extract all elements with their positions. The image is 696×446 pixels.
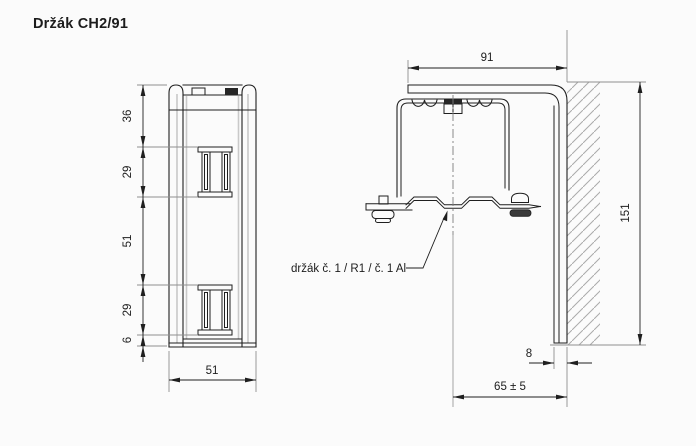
- drawing-canvas: Držák CH2/91: [0, 0, 696, 446]
- front-rails: [169, 85, 256, 347]
- dim-91: 91: [481, 52, 494, 64]
- side-view: 91 151 8 65 ± 5: [291, 30, 646, 407]
- holder-leader: držák č. 1 / R1 / č. 1 Al: [291, 211, 448, 276]
- front-slot-lower: [198, 285, 232, 335]
- dim-151: 151: [620, 203, 632, 222]
- leader-label: držák č. 1 / R1 / č. 1 Al: [291, 263, 406, 275]
- page-title: Držák CH2/91: [33, 16, 128, 32]
- dim-29-lower: 29: [122, 304, 134, 317]
- top-tab-left: [192, 88, 205, 95]
- left-bolt-shank: [379, 196, 388, 204]
- bracket-profile: [408, 85, 567, 343]
- front-view-shading: [177, 94, 248, 343]
- side-width-dimension: 91: [408, 30, 567, 83]
- top-tab-right: [225, 88, 238, 95]
- front-view: 36 29 51 29 6 51: [122, 85, 256, 392]
- side-height-dimension: 151: [620, 82, 642, 345]
- front-body: [169, 85, 256, 347]
- dim-51-width: 51: [206, 365, 219, 377]
- left-bolt-washer: [376, 219, 391, 223]
- dim-29-upper: 29: [122, 166, 134, 179]
- front-slot-upper: [198, 147, 232, 197]
- dim-6: 6: [122, 337, 134, 343]
- left-bolt-nut: [372, 211, 394, 219]
- dim-8: 8: [526, 348, 532, 360]
- dim-51-mid: 51: [122, 235, 134, 248]
- right-screw-head: [512, 193, 529, 202]
- technical-drawing: Držák CH2/91: [0, 0, 696, 446]
- dim-65-plus-minus-5: 65 ± 5: [494, 381, 526, 393]
- offset-dimension: 65 ± 5: [453, 381, 567, 399]
- dim-36: 36: [122, 110, 134, 123]
- right-screw-nut: [510, 210, 531, 217]
- front-width-dimension: 51: [169, 351, 256, 392]
